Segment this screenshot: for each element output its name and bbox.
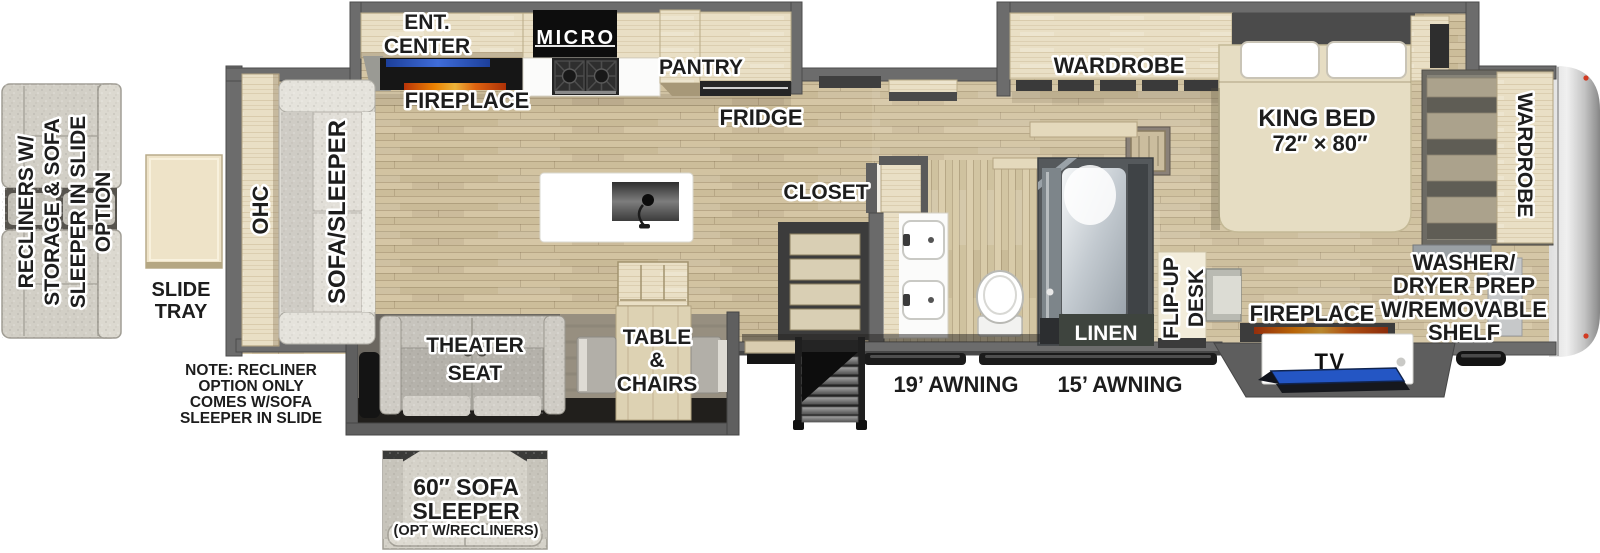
- svg-text:FIREPLACE: FIREPLACE: [405, 88, 530, 113]
- svg-text:SLEEPER: SLEEPER: [412, 498, 520, 524]
- svg-text:SEAT: SEAT: [448, 362, 503, 385]
- svg-text:STORAGE & SOFA: STORAGE & SOFA: [41, 118, 64, 305]
- svg-text:TABLE: TABLE: [623, 326, 691, 349]
- svg-text:MICRO: MICRO: [536, 27, 615, 49]
- svg-text:19’ AWNING: 19’ AWNING: [893, 372, 1018, 397]
- svg-text:SLEEPER IN SLIDE: SLEEPER IN SLIDE: [180, 410, 322, 427]
- svg-text:60″ SOFA: 60″ SOFA: [413, 474, 519, 500]
- svg-text:15’ AWNING: 15’ AWNING: [1057, 372, 1182, 397]
- svg-text:CENTER: CENTER: [384, 35, 470, 58]
- svg-text:THEATER: THEATER: [426, 334, 524, 357]
- svg-text:NOTE: RECLINER: NOTE: RECLINER: [185, 362, 317, 379]
- svg-text:CHAIRS: CHAIRS: [617, 373, 698, 396]
- svg-text:WASHER/: WASHER/: [1413, 250, 1516, 275]
- svg-text:RECLINERS W/: RECLINERS W/: [15, 135, 38, 288]
- svg-text:FRIDGE: FRIDGE: [719, 105, 802, 130]
- svg-text:(OPT W/RECLINERS): (OPT W/RECLINERS): [394, 523, 539, 539]
- svg-text:72″ × 80″: 72″ × 80″: [1272, 131, 1368, 156]
- svg-text:DRYER PREP: DRYER PREP: [1393, 273, 1535, 298]
- svg-text:SLEEPER IN SLIDE: SLEEPER IN SLIDE: [67, 116, 90, 309]
- svg-text:PANTRY: PANTRY: [659, 56, 743, 79]
- svg-text:WARDROBE: WARDROBE: [1054, 53, 1185, 78]
- svg-text:OPTION: OPTION: [92, 172, 115, 253]
- svg-text:CLOSET: CLOSET: [783, 181, 868, 204]
- svg-text:KING BED: KING BED: [1258, 105, 1375, 132]
- svg-text:TRAY: TRAY: [155, 301, 208, 323]
- svg-text:SHELF: SHELF: [1428, 320, 1500, 345]
- svg-text:&: &: [649, 349, 664, 372]
- svg-text:DESK: DESK: [1185, 269, 1208, 327]
- svg-text:FLIP-UP: FLIP-UP: [1160, 257, 1183, 339]
- svg-text:LINEN: LINEN: [1075, 322, 1138, 345]
- svg-text:COMES W/SOFA: COMES W/SOFA: [190, 394, 312, 411]
- svg-text:OHC: OHC: [248, 185, 273, 234]
- svg-text:OPTION ONLY: OPTION ONLY: [198, 378, 304, 395]
- svg-text:W/REMOVABLE: W/REMOVABLE: [1381, 297, 1547, 322]
- svg-text:FIREPLACE: FIREPLACE: [1250, 301, 1375, 326]
- svg-text:SLIDE: SLIDE: [152, 279, 211, 301]
- svg-text:TV: TV: [1314, 349, 1345, 374]
- svg-text:WARDROBE: WARDROBE: [1513, 93, 1536, 218]
- svg-text:ENT.: ENT.: [404, 11, 450, 34]
- svg-text:SOFA/SLEEPER: SOFA/SLEEPER: [324, 120, 351, 304]
